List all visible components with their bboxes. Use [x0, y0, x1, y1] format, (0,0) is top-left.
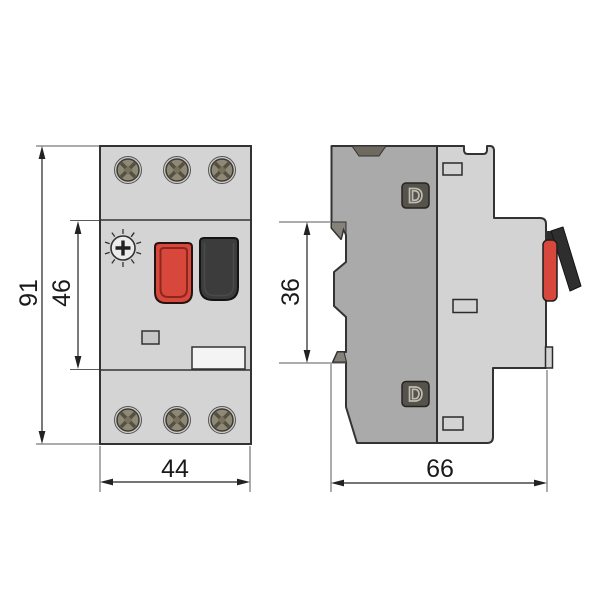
terminal-badge-top: D [402, 183, 429, 208]
dimension-46-label: 46 [48, 279, 76, 307]
detail-slot-bottom [443, 417, 463, 430]
screw-terminal-icon [164, 157, 191, 184]
technical-drawing-canvas: D D [0, 0, 600, 600]
screw-terminal-icon [115, 407, 142, 434]
dimension-44: 44 [100, 455, 250, 485]
arrowhead-right-icon [237, 479, 250, 486]
screw-terminal-icon [209, 157, 236, 184]
arrowhead-right-icon [534, 480, 547, 487]
din-claw [332, 222, 347, 239]
detail-slot-top [443, 163, 462, 175]
dimension-91-label: 91 [15, 279, 43, 307]
dimension-66-label: 66 [426, 455, 454, 483]
stop-button-black [200, 238, 238, 300]
drawing-svg: D D [0, 0, 600, 600]
arrowhead-up-icon [304, 222, 311, 235]
terminal-letter: D [408, 186, 422, 208]
arrowhead-down-icon [39, 431, 46, 444]
dimension-36: 36 [277, 222, 310, 363]
detail-slot-mid [453, 300, 477, 313]
arrowhead-left-icon [331, 480, 344, 487]
dimension-44-label: 44 [161, 455, 189, 483]
start-button-red [155, 243, 192, 303]
din-foot [333, 352, 347, 362]
face-tab [546, 347, 553, 368]
screw-terminal-icon [115, 157, 142, 184]
side-view: D D [332, 146, 582, 443]
side-view-front-half [437, 146, 546, 443]
arrowhead-left-icon [100, 479, 113, 486]
front-view [100, 146, 251, 444]
terminal-screws-bottom [115, 407, 236, 434]
terminal-badge-bottom: D [402, 382, 429, 407]
screw-terminal-icon [209, 407, 236, 434]
dimension-36-label: 36 [277, 278, 305, 306]
arrowhead-down-icon [75, 356, 82, 369]
arrowhead-up-icon [39, 146, 46, 159]
dimension-46: 46 [48, 221, 81, 369]
terminal-letter: D [408, 384, 422, 406]
label-plate [192, 347, 245, 369]
dimension-66: 66 [331, 455, 547, 486]
terminal-screws-top [115, 157, 236, 184]
marking-window [142, 331, 159, 344]
screw-terminal-icon [164, 407, 191, 434]
arrowhead-up-icon [75, 221, 82, 234]
start-button-side [543, 240, 557, 301]
arrowhead-down-icon [304, 350, 311, 363]
dimension-91: 91 [15, 146, 45, 444]
